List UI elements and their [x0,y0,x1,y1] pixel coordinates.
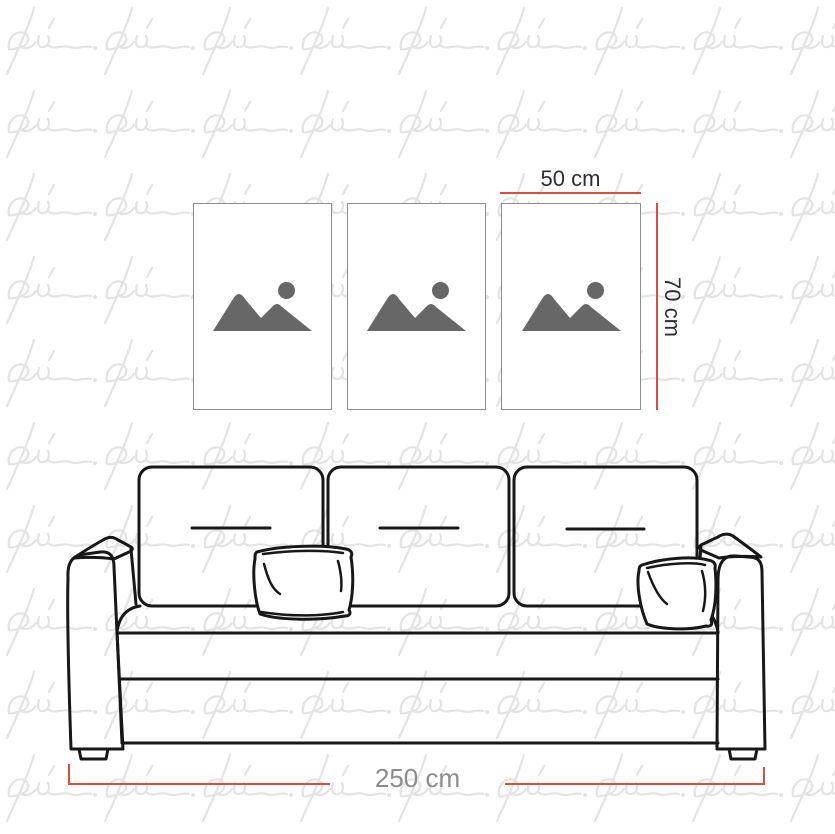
sofa-base [117,606,718,743]
sofa-foot-left [79,749,108,759]
throw-pillow-left [254,546,353,619]
back-cushion-2 [328,467,509,606]
left-armrest [68,537,136,759]
back-cushion-1 [139,467,323,606]
sofa-width-label: 250 cm [330,765,505,791]
frame-1 [193,203,332,410]
right-armrest [700,534,765,759]
sofa-width-dimension-line-left [68,783,330,785]
frame-width-label: 50 cm [500,168,641,190]
frame-3 [501,203,641,410]
size-guide-image: 50 cm 70 cm 250 cm [0,0,835,834]
watermark-pattern [0,0,835,834]
sofa-width-tick-left [68,764,70,785]
sofa-width-tick-right [763,767,765,785]
frame-2 [347,203,486,410]
throw-pillow-right [638,558,716,629]
back-cushion-3 [514,467,697,606]
sofa-width-dimension-line-right [505,783,765,785]
frame-height-label: 70 cm [658,203,686,410]
image-placeholder-icon [212,281,313,333]
image-placeholder-icon [366,281,467,333]
sofa-foot-right [729,749,757,759]
sofa-line-art [0,0,835,834]
image-placeholder-icon [521,281,622,333]
frame-width-dimension-line [500,192,641,194]
